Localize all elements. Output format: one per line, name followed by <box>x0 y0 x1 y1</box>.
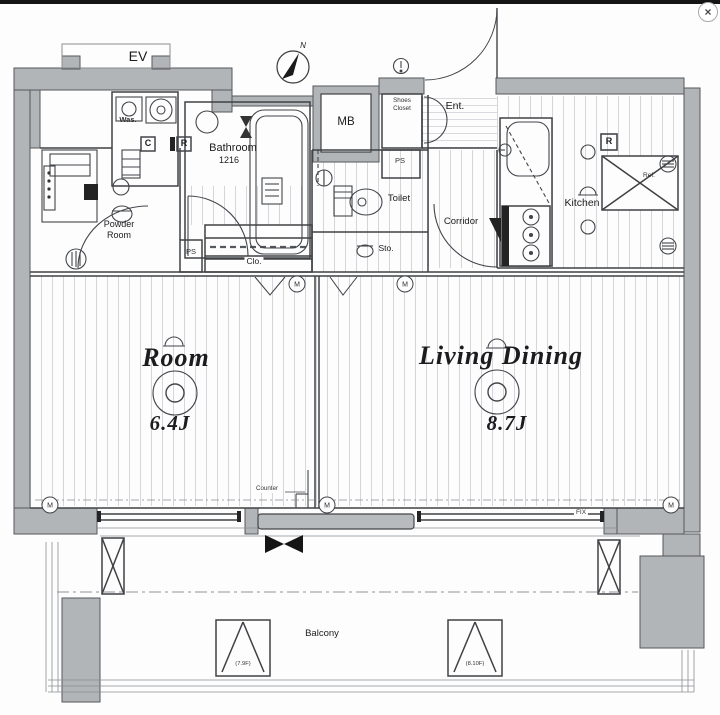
folding-door-marks <box>255 277 357 295</box>
label-pipe-space-left: PS <box>186 248 196 256</box>
label-fix-window: FIX <box>574 510 588 517</box>
label-meter-box: MB <box>337 116 354 128</box>
label-balcony: Balcony <box>305 629 339 639</box>
label-counter: Counter <box>254 486 280 493</box>
label-bathroom: Bathroom <box>209 143 257 155</box>
floorplan-page: × <box>0 0 720 715</box>
label-north: N <box>300 42 306 50</box>
label-toilet: Toilet <box>388 194 410 204</box>
svg-text:M: M <box>324 503 330 510</box>
label-box-r-kitchen: R <box>606 137 613 146</box>
label-refrigerator: Ref. <box>643 173 655 180</box>
label-shoes-closet-1: Shoes <box>393 98 411 105</box>
bowtie-joint-mark <box>265 535 303 553</box>
structure-lines <box>30 92 684 676</box>
label-washer: Was. <box>119 116 136 124</box>
outlet-m-symbols <box>42 276 679 513</box>
label-powder-room-2: Room <box>107 231 131 240</box>
label-living-dining: Living Dining <box>419 342 583 369</box>
svg-text:M: M <box>47 503 53 510</box>
label-room: Room <box>142 344 210 371</box>
wall-blocks <box>14 56 704 702</box>
label-elevator: EV <box>129 49 148 64</box>
label-corridor: Corridor <box>444 217 478 227</box>
label-storage: Sto. <box>378 244 393 253</box>
label-hatch-left-floors: (7.9F) <box>235 661 250 667</box>
outlet-m-letters: M M M M M <box>47 282 674 510</box>
label-pipe-space-top: PS <box>395 157 405 165</box>
svg-text:M: M <box>294 282 300 289</box>
svg-text:M: M <box>668 503 674 510</box>
label-living-size: 8.7J <box>487 412 528 434</box>
label-room-size: 6.4J <box>150 412 191 434</box>
label-powder-room-1: Powder <box>104 220 135 229</box>
label-box-c: C <box>145 139 152 148</box>
label-box-r-bath: R <box>181 139 188 148</box>
label-shoes-closet-2: Closet <box>393 106 411 113</box>
label-bathroom-size: 1216 <box>219 156 239 165</box>
compass-icon <box>277 51 309 83</box>
sliding-window-sash <box>258 514 414 529</box>
svg-text:M: M <box>402 282 408 289</box>
label-entrance: Ent. <box>446 101 465 112</box>
label-closet: Clo. <box>244 257 263 266</box>
label-kitchen: Kitchen <box>564 198 599 209</box>
label-hatch-right-floors: (8.10F) <box>466 661 485 667</box>
